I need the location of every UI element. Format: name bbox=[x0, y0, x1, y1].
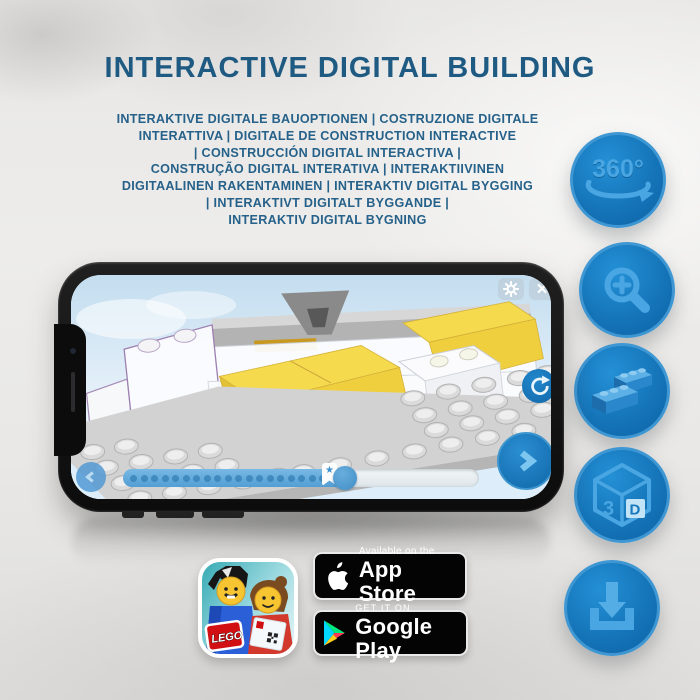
rotate-icon bbox=[528, 375, 550, 397]
chevron-right-icon bbox=[511, 446, 541, 476]
slider-dot bbox=[309, 475, 316, 482]
slider-dot bbox=[225, 475, 232, 482]
subtitle-line: DIGITAALINEN RAKENTAMINEN | INTERAKTIV D… bbox=[35, 178, 620, 195]
google-play-tagline: GET IT ON bbox=[355, 603, 466, 614]
feature-download bbox=[564, 560, 660, 656]
slider-dot bbox=[151, 475, 158, 482]
marketing-page: INTERACTIVE DIGITAL BUILDING INTERAKTIVE… bbox=[0, 0, 700, 700]
cube-d-label: D bbox=[630, 502, 641, 519]
app-store-tagline: Available on the bbox=[359, 546, 465, 557]
previous-step-button[interactable] bbox=[76, 462, 106, 492]
slider-dot bbox=[246, 475, 253, 482]
google-play-name: Google Play bbox=[355, 615, 466, 663]
app-store-badge[interactable]: Available on the App Store bbox=[313, 552, 467, 600]
page-title: INTERACTIVE DIGITAL BUILDING bbox=[0, 52, 700, 85]
360-degree-label: 360° bbox=[592, 158, 644, 180]
slider-dot bbox=[214, 475, 221, 482]
3d-cube-icon: 3 D bbox=[590, 462, 654, 528]
subtitle-line: CONSTRUÇÃO DIGITAL INTERATIVA | INTERAKT… bbox=[35, 161, 620, 178]
apple-icon bbox=[324, 561, 350, 591]
subtitle-line: | CONSTRUCCIÓN DIGITAL INTERACTIVA | bbox=[35, 145, 620, 162]
slider-dot bbox=[288, 475, 295, 482]
next-step-button[interactable] bbox=[497, 432, 551, 490]
feature-bricks bbox=[574, 343, 670, 439]
phone-notch bbox=[54, 324, 86, 456]
chevron-left-icon bbox=[83, 469, 99, 485]
slider-dot bbox=[267, 475, 274, 482]
slider-filled-range bbox=[123, 469, 349, 487]
google-play-icon bbox=[324, 618, 346, 648]
subtitle-line: INTERAKTIVE DIGITALE BAUOPTIONEN | COSTR… bbox=[35, 111, 620, 128]
feature-zoom-in bbox=[579, 242, 675, 338]
slider-dot bbox=[204, 475, 211, 482]
slider-dot bbox=[256, 475, 263, 482]
app-store-name: App Store bbox=[359, 558, 465, 606]
subtitle-translations: INTERAKTIVE DIGITALE BAUOPTIONEN | COSTR… bbox=[35, 111, 620, 229]
slider-dot bbox=[162, 475, 169, 482]
slider-dot bbox=[141, 475, 148, 482]
slider-dot bbox=[172, 475, 179, 482]
slider-dot bbox=[183, 475, 190, 482]
close-icon: × bbox=[536, 280, 547, 299]
slider-dot bbox=[193, 475, 200, 482]
slider-dot bbox=[130, 475, 137, 482]
bricks-icon bbox=[590, 361, 654, 421]
front-camera bbox=[70, 348, 76, 354]
settings-button[interactable] bbox=[498, 278, 524, 300]
subtitle-line: INTERATTIVA | DIGITALE DE CONSTRUCTION I… bbox=[35, 128, 620, 145]
download-icon bbox=[582, 580, 642, 636]
google-play-badge[interactable]: GET IT ON Google Play bbox=[313, 610, 468, 656]
cube-3-label: 3 bbox=[603, 498, 614, 520]
lego-app-icon[interactable]: LEGO bbox=[198, 558, 298, 658]
slider-dot bbox=[277, 475, 284, 482]
lego-3d-scene bbox=[71, 275, 551, 499]
earpiece-speaker bbox=[71, 372, 75, 412]
gear-icon bbox=[503, 281, 519, 297]
build-progress-slider[interactable]: ★ bbox=[123, 469, 479, 487]
subtitle-line: | INTERAKTIVT DIGITALT BYGGANDE | bbox=[35, 195, 620, 212]
subtitle-line: INTERAKTIV DIGITAL BYGNING bbox=[35, 212, 620, 229]
slider-dot bbox=[298, 475, 305, 482]
rotate-arrow-icon bbox=[582, 180, 654, 202]
lego-app-artwork: LEGO bbox=[202, 562, 294, 654]
zoom-in-icon bbox=[598, 261, 656, 319]
phone-reflection bbox=[72, 518, 550, 566]
feature-360-rotation: 360° bbox=[570, 132, 666, 228]
phone-mockup: × bbox=[58, 262, 564, 512]
close-button[interactable]: × bbox=[529, 278, 551, 300]
rotate-model-button[interactable] bbox=[522, 369, 551, 403]
app-screen: × bbox=[71, 275, 551, 499]
slider-dot bbox=[235, 475, 242, 482]
slider-thumb[interactable] bbox=[333, 466, 357, 490]
feature-3d-view: 3 D bbox=[574, 447, 670, 543]
